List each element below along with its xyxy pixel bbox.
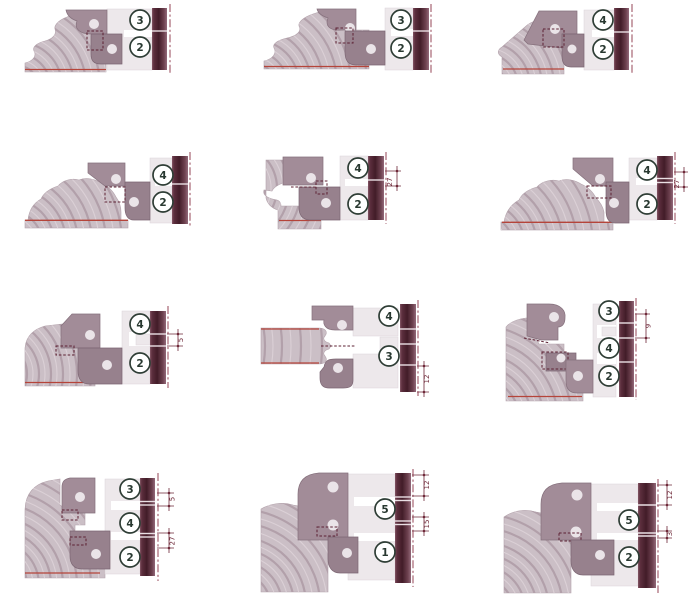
callout-5: 5	[375, 499, 395, 519]
callout-3: 3	[599, 301, 619, 321]
dimension-value: 5	[169, 497, 177, 501]
callout-2: 2	[619, 547, 639, 567]
spacer-gap	[597, 533, 638, 540]
callout-4: 4	[637, 160, 657, 180]
callout-4: 4	[599, 338, 619, 358]
spacer-gap	[124, 30, 152, 37]
cutter-lower	[562, 34, 584, 67]
spindle-bar	[368, 156, 384, 220]
spindle-bar	[140, 478, 155, 576]
dimension-value: 27	[673, 180, 681, 189]
spindle-bar	[152, 8, 167, 70]
callout-2: 2	[153, 192, 173, 212]
callout-label: 4	[136, 319, 143, 331]
dimension-value: 27	[169, 537, 177, 546]
callout-label: 3	[605, 306, 612, 318]
bolt-hole	[342, 548, 352, 558]
spacer-gap	[111, 501, 140, 510]
cutter-lower	[571, 540, 614, 575]
spacer-ring	[136, 334, 150, 345]
spindle-bar	[150, 311, 166, 384]
callout-label: 4	[605, 343, 612, 355]
dimension: 9	[635, 309, 653, 343]
cutter-lower	[91, 34, 122, 64]
bolt-hole	[595, 550, 605, 560]
dimension: 12	[417, 361, 431, 397]
bolt-hole	[571, 527, 582, 538]
bolt-hole	[366, 44, 376, 54]
callout-label: 2	[159, 197, 166, 209]
callout-label: 3	[385, 351, 392, 363]
cutter-lower	[345, 31, 385, 65]
dimension-value: 15	[423, 520, 431, 529]
bolt-hole	[306, 173, 316, 183]
callout-label: 5	[625, 515, 632, 527]
dimension-1: 12	[657, 480, 674, 510]
callout-label: 4	[385, 311, 392, 323]
figure-canvas: 3 2 3 2 4 2 4 2 27 4	[0, 0, 700, 594]
callout-4: 4	[130, 314, 150, 334]
cutter-lower	[299, 187, 340, 220]
spacer-gap	[345, 179, 368, 186]
spacer-gap	[354, 533, 395, 541]
spacer-ring	[602, 327, 616, 336]
spacer-gap	[111, 532, 140, 540]
spindle-bar	[172, 156, 188, 224]
bolt-hole	[321, 198, 331, 208]
dimension-value: 3	[666, 532, 674, 536]
callout-label: 3	[397, 15, 404, 27]
dimension-value: 9	[645, 324, 653, 328]
callout-label: 1	[381, 547, 388, 559]
spindle-bar	[638, 483, 656, 588]
dimension-value: 5	[177, 338, 185, 342]
bolt-hole	[333, 363, 343, 373]
callout-4: 4	[120, 513, 140, 533]
callout-label: 2	[354, 199, 361, 211]
bolt-hole	[328, 482, 339, 493]
callout-label: 5	[381, 504, 388, 516]
callout-3: 3	[130, 10, 150, 30]
callout-2: 2	[599, 366, 619, 386]
bolt-hole	[549, 312, 559, 322]
callout-label: 2	[397, 43, 404, 55]
bolt-hole	[75, 492, 85, 502]
callout-label: 4	[126, 518, 133, 530]
callout-label: 2	[136, 42, 143, 54]
callout-4: 4	[348, 158, 368, 178]
callout-label: 2	[605, 371, 612, 383]
bolt-hole	[609, 198, 619, 208]
bolt-hole	[573, 371, 583, 381]
callout-label: 4	[159, 170, 166, 182]
cutter-upper	[61, 314, 100, 348]
dimension-value: 27	[386, 178, 394, 187]
callout-label: 2	[136, 358, 143, 370]
callout-label: 2	[625, 552, 632, 564]
bolt-hole	[557, 354, 566, 363]
cutter-lower	[328, 537, 358, 573]
dimension: 27	[385, 166, 401, 191]
bolt-hole	[595, 174, 605, 184]
callout-2: 2	[637, 194, 657, 214]
callout-3: 3	[379, 346, 399, 366]
bolt-hole	[568, 45, 577, 54]
dimension-value: 12	[423, 375, 431, 384]
callout-label: 4	[599, 15, 606, 27]
callout-label: 3	[126, 484, 133, 496]
spindle-bar	[614, 8, 629, 70]
bolt-hole	[337, 320, 347, 330]
spindle-bar	[400, 304, 416, 392]
callout-4: 4	[593, 10, 613, 30]
dimension-value: 12	[666, 491, 674, 500]
cutter-upper	[62, 478, 95, 513]
bolt-hole	[572, 490, 583, 501]
cell-r4c1: 5 27 3 4 2	[0, 394, 186, 594]
spindle-bar	[619, 301, 634, 397]
dimension-1: 12	[412, 470, 431, 501]
cutter-lower	[78, 348, 122, 384]
callout-5: 5	[619, 510, 639, 530]
callout-4: 4	[153, 165, 173, 185]
callout-2: 2	[593, 39, 613, 59]
bolt-hole	[85, 330, 95, 340]
callout-3: 3	[120, 479, 140, 499]
dimension-1: 5	[157, 488, 177, 511]
callout-3: 3	[391, 10, 411, 30]
callout-label: 2	[599, 44, 606, 56]
cutter-upper	[541, 483, 591, 540]
cutter-upper	[527, 304, 565, 340]
dimension-2: 15	[412, 512, 431, 536]
callout-label: 3	[136, 15, 143, 27]
cutter-upper	[312, 306, 353, 330]
bolt-hole	[102, 360, 112, 370]
callout-label: 4	[354, 163, 361, 175]
bolt-hole	[107, 44, 117, 54]
dimension: 5	[167, 329, 185, 351]
callout-2: 2	[391, 38, 411, 58]
dimension-2: 3	[657, 526, 674, 543]
callout-2: 2	[348, 194, 368, 214]
cutter-lower	[606, 182, 629, 223]
callout-1: 1	[375, 542, 395, 562]
callout-2: 2	[130, 37, 150, 57]
callout-2: 2	[120, 547, 140, 567]
callout-label: 2	[643, 199, 650, 211]
callout-2: 2	[130, 353, 150, 373]
cutter-lower	[566, 360, 593, 393]
dimension-2: 27	[157, 528, 177, 553]
cell-r1c1: 3 2	[0, 0, 209, 277]
spacer-gap	[592, 30, 614, 37]
cutterhead-profile-figure: 3 2 3 2 4 2 4 2 27 4	[0, 0, 700, 594]
spindle-bar	[657, 156, 673, 220]
cutter-lower	[320, 359, 353, 388]
dimension-value: 12	[423, 481, 431, 490]
bolt-hole	[129, 197, 139, 207]
spindle-bar	[395, 473, 411, 583]
callout-4: 4	[379, 306, 399, 326]
bolt-hole	[328, 520, 339, 531]
bolt-hole	[111, 174, 121, 184]
bolt-hole	[89, 19, 99, 29]
spindle-bar	[413, 8, 429, 70]
callout-label: 2	[126, 552, 133, 564]
cutter-lower	[125, 182, 150, 220]
callout-label: 4	[643, 165, 650, 177]
bolt-hole	[91, 549, 101, 559]
cutter-upper	[298, 473, 348, 540]
